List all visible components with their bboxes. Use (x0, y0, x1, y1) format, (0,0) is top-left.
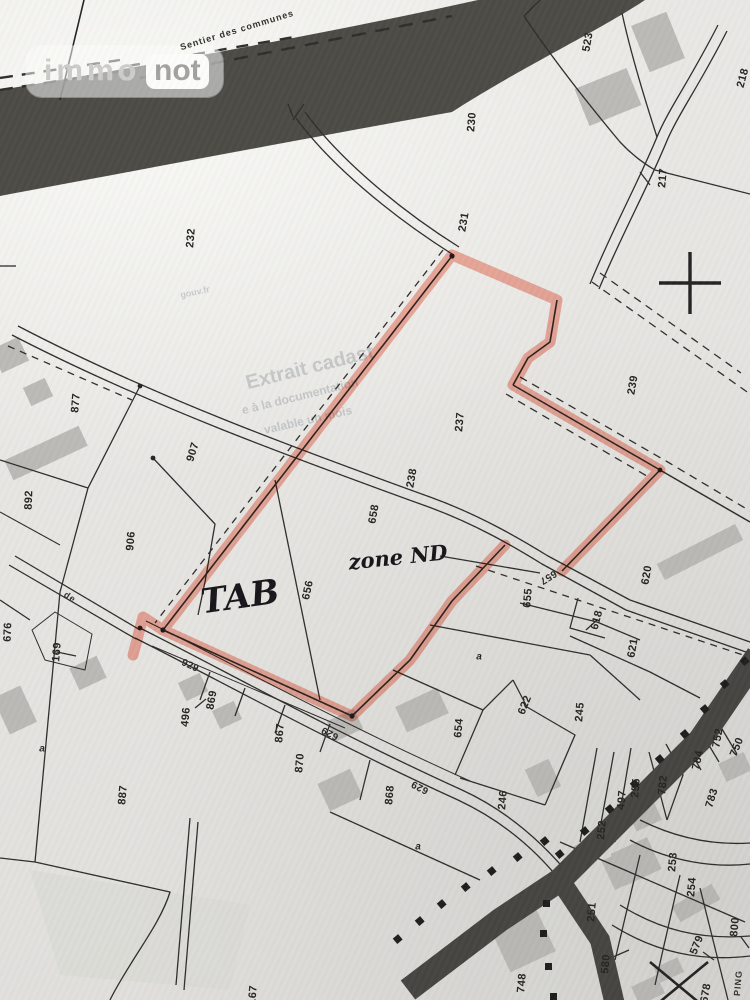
parcel-number-label: 232 (184, 228, 198, 249)
letter-label: a (476, 652, 482, 663)
parcel-number-label: 678 (698, 982, 713, 1000)
cadastral-map-photo: Extrait cadaste à la documentationvalabl… (0, 0, 750, 1000)
parcel-number-label: 246 (496, 790, 510, 811)
parcel-number-label: 580 (599, 954, 613, 975)
parcel-number-label: 676 (2, 622, 15, 642)
immonot-logo: immo not (26, 46, 223, 97)
parcel-number-label: 245 (573, 702, 587, 723)
parcel-number-label: 255 (629, 778, 643, 799)
logo-immo-text: immo (44, 54, 140, 88)
parcel-number-label: 251 (585, 902, 599, 923)
parcel-number-label: 654 (452, 718, 466, 739)
parcel-number-label: 169 (50, 642, 64, 663)
parcel-number-label: 230 (465, 112, 479, 133)
logo-not-text: not (146, 54, 209, 89)
parcel-number-label: 800 (728, 917, 742, 938)
parcel-number-label: 877 (69, 393, 83, 414)
parcel-number-label: 497 (615, 790, 629, 811)
parcel-number-label: 655 (521, 588, 535, 609)
path-band-sentier (0, 0, 645, 196)
parcel-number-label: 217 (656, 168, 670, 189)
parcel-number-label: 906 (124, 531, 138, 552)
letter-label: a (415, 842, 421, 853)
parcel-number-label: 252 (595, 820, 609, 841)
parcel-number-label: 887 (116, 785, 130, 806)
map-linework (0, 0, 750, 1000)
parcel-number-label: 782 (656, 775, 670, 796)
survey-cross (659, 252, 721, 314)
parcel-number-label: 254 (685, 877, 699, 898)
parcel-number-label: 870 (293, 753, 307, 774)
parcel-number-label: 868 (383, 785, 397, 806)
parcel-number-label: 748 (515, 973, 529, 994)
letter-label: a (39, 744, 45, 755)
parcel-number-label: 867 (273, 723, 287, 744)
parcel-number-label: 253 (666, 852, 680, 873)
parcel-number-label: 167 (246, 985, 260, 1000)
parcel-number-label: 892 (23, 490, 36, 510)
parcel-number-label: 237 (453, 412, 467, 433)
parcel-number-label: 496 (179, 707, 193, 728)
